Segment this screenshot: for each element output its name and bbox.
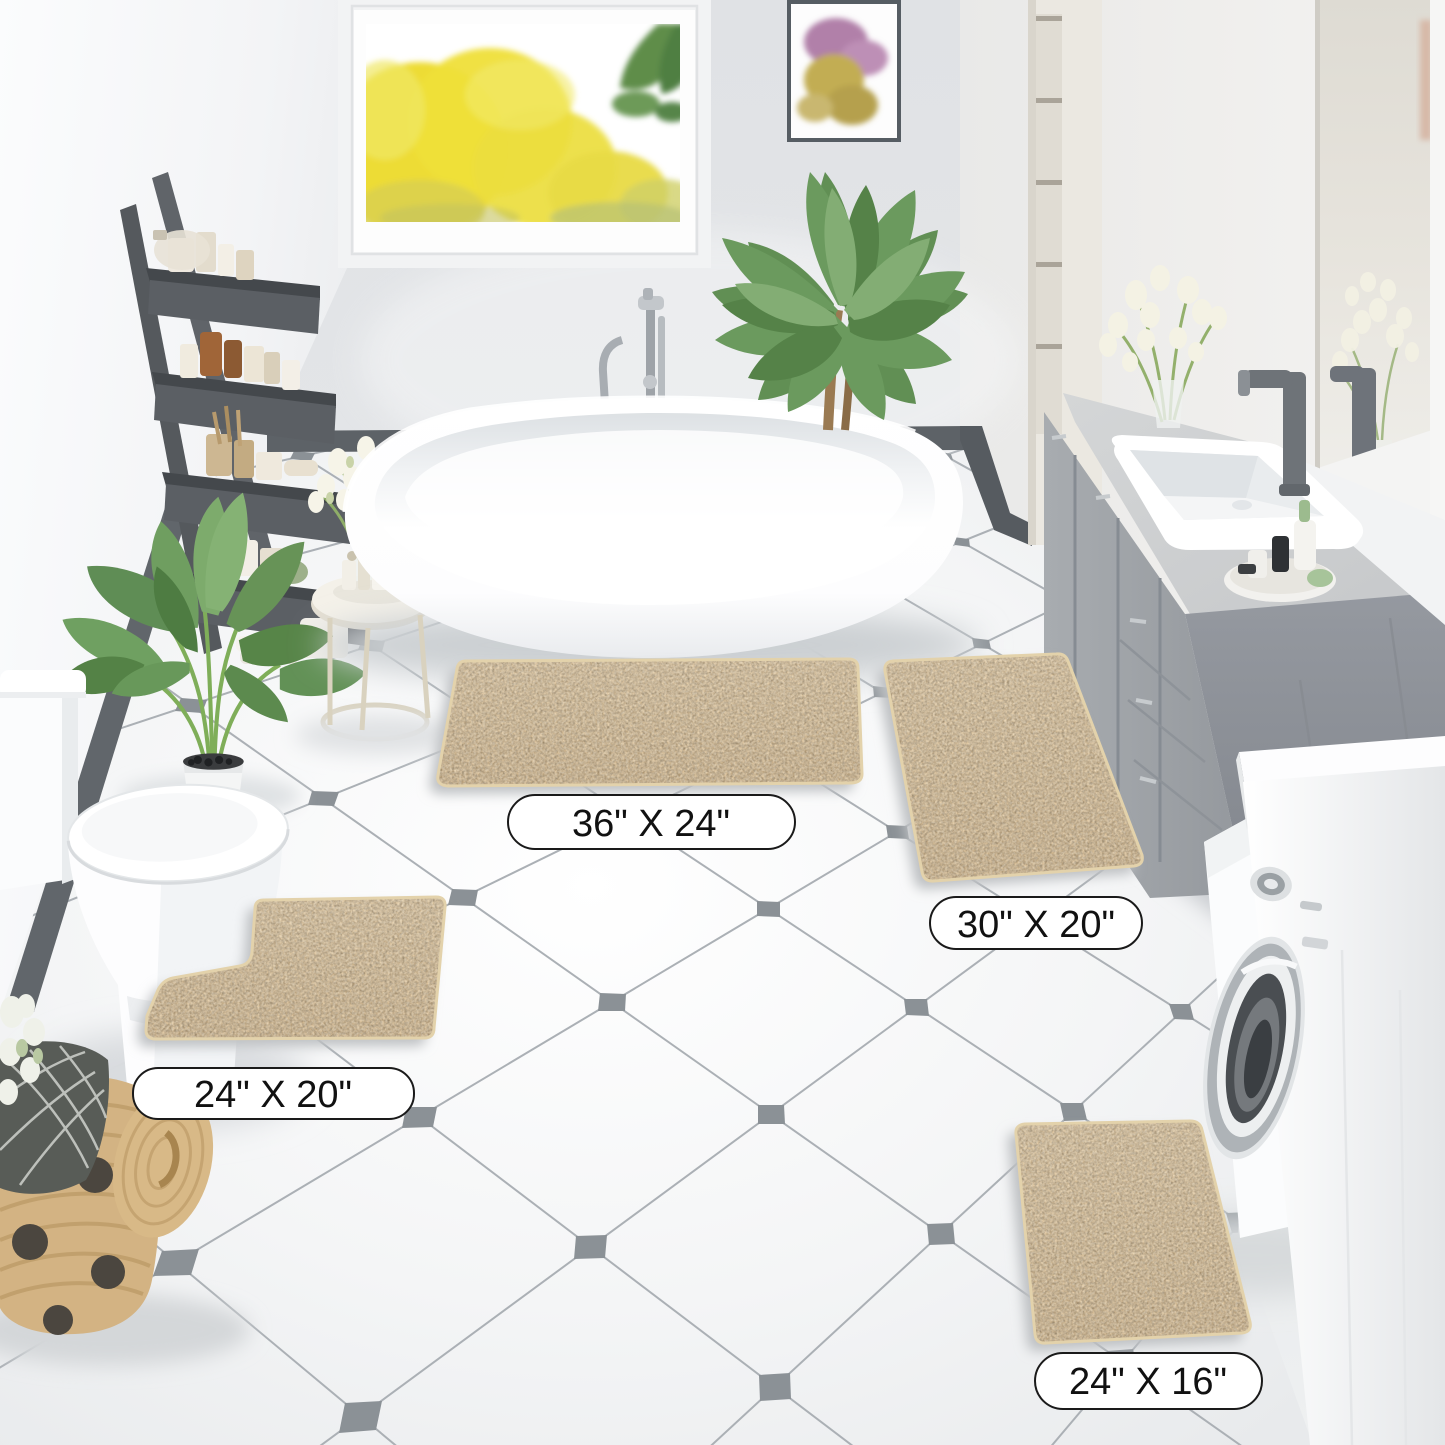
svg-text:24" X 20": 24" X 20" — [194, 1074, 352, 1116]
svg-text:36" X 24": 36" X 24" — [572, 803, 730, 845]
svg-text:30" X 20": 30" X 20" — [957, 904, 1115, 946]
svg-text:24" X 16": 24" X 16" — [1069, 1361, 1227, 1403]
